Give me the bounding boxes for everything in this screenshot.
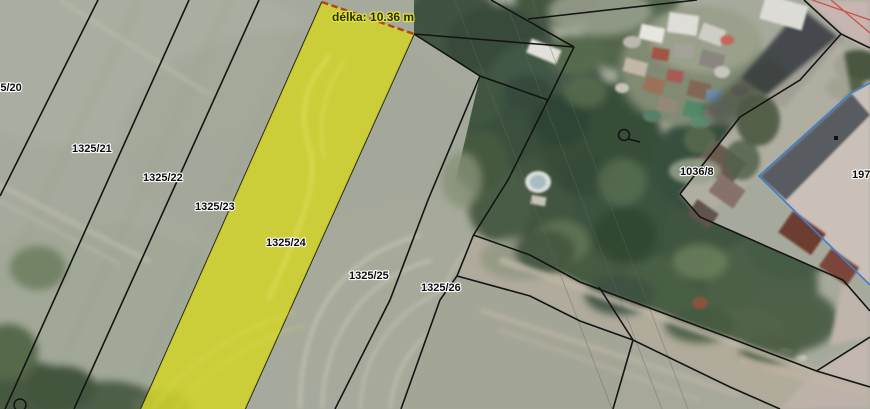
svg-text:1325/24: 1325/24 <box>266 237 307 249</box>
svg-text:1325/22: 1325/22 <box>143 172 183 184</box>
svg-text:1325/25: 1325/25 <box>349 270 389 282</box>
svg-text:délka: 10.36 m: délka: 10.36 m <box>332 10 414 24</box>
svg-text:197: 197 <box>852 169 870 181</box>
svg-text:1325/26: 1325/26 <box>421 282 461 294</box>
svg-text:1325/21: 1325/21 <box>72 143 112 155</box>
svg-text:1325/23: 1325/23 <box>195 201 235 213</box>
svg-text:1325/20: 1325/20 <box>0 82 22 94</box>
svg-text:1036/8: 1036/8 <box>680 166 714 178</box>
